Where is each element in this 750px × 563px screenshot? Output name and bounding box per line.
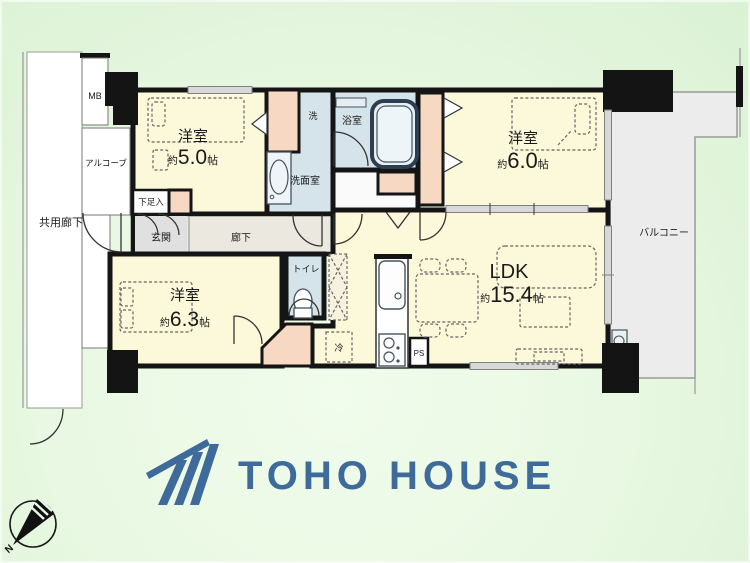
- ldk-type-label: LDK: [490, 261, 530, 283]
- washer-label: 洗: [308, 110, 317, 121]
- compass-north-label: N: [3, 543, 16, 556]
- common-corridor-label: 共用廊下: [39, 215, 83, 229]
- ldk-unit: 帖: [533, 292, 544, 305]
- alcove-label: アルコーブ: [85, 158, 127, 168]
- meter-box-label: MB: [88, 91, 102, 101]
- pillar-right-edge: [736, 66, 743, 107]
- bedroom5-size: 5.0: [178, 146, 207, 169]
- pillar-top-left: [105, 72, 138, 125]
- washroom-label: 洗面室: [290, 174, 320, 187]
- washroom-sink: [267, 152, 291, 204]
- shoe-box-label: 下足入: [138, 197, 164, 207]
- closet-under-bath: [378, 172, 416, 194]
- hallway-label: 廊下: [231, 231, 251, 244]
- toho-house-logo-text: TOHO HOUSE: [238, 454, 556, 498]
- alcove-area: [82, 128, 130, 215]
- bedroom5-unit: 帖: [207, 154, 218, 167]
- kitchen-sink: [379, 261, 405, 309]
- stove: [379, 334, 405, 366]
- pillar-bottom-left: [107, 350, 138, 393]
- balcony-label: バルコニー: [639, 227, 689, 239]
- pipe-space-label: PS: [414, 349, 425, 358]
- ldk-size: 15.4: [490, 282, 533, 307]
- bedroom6-size: 6.0: [507, 148, 538, 173]
- ldk-approx: 約: [480, 292, 490, 305]
- corridor-door-arc: [30, 409, 63, 444]
- toho-house-logo-mark-icon: [146, 439, 219, 505]
- bathroom-label: 浴室: [342, 114, 362, 127]
- closet-by-washroom: [267, 90, 299, 152]
- toilet-fixture: [294, 289, 312, 318]
- bedroom6-approx: 約: [497, 158, 507, 171]
- toilet-label: トイレ: [292, 264, 319, 274]
- hatched-storage: [329, 254, 347, 320]
- entrance-label: 玄関: [151, 231, 171, 244]
- bedroom6-type-label: 洋室: [508, 130, 538, 147]
- fridge-label: 冷: [334, 342, 343, 353]
- bedroom5-type-label: 洋室: [178, 128, 208, 145]
- pillar-bottom-right: [602, 343, 639, 393]
- compass-icon: N: [3, 499, 56, 556]
- bedroom63-approx: 約: [160, 316, 170, 329]
- bedroom5-approx: 約: [168, 154, 178, 167]
- bedroom6-closet: [419, 93, 443, 205]
- bedroom6-unit: 帖: [538, 158, 549, 171]
- bedroom63-unit: 帖: [199, 316, 210, 329]
- bedroom63-type-label: 洋室: [170, 287, 200, 304]
- floorplan-svg: 共用廊下 MB アルコーブ 下足入 玄関 廊下 洗 浴室 洗面室 トイレ 冷 P…: [0, 0, 750, 563]
- bedroom63-size: 6.3: [170, 308, 199, 331]
- toho-house-logo: TOHO HOUSE: [146, 439, 556, 505]
- pillar-top-right: [603, 70, 673, 112]
- floorplan-image: 共用廊下 MB アルコーブ 下足入 玄関 廊下 洗 浴室 洗面室 トイレ 冷 P…: [0, 0, 750, 563]
